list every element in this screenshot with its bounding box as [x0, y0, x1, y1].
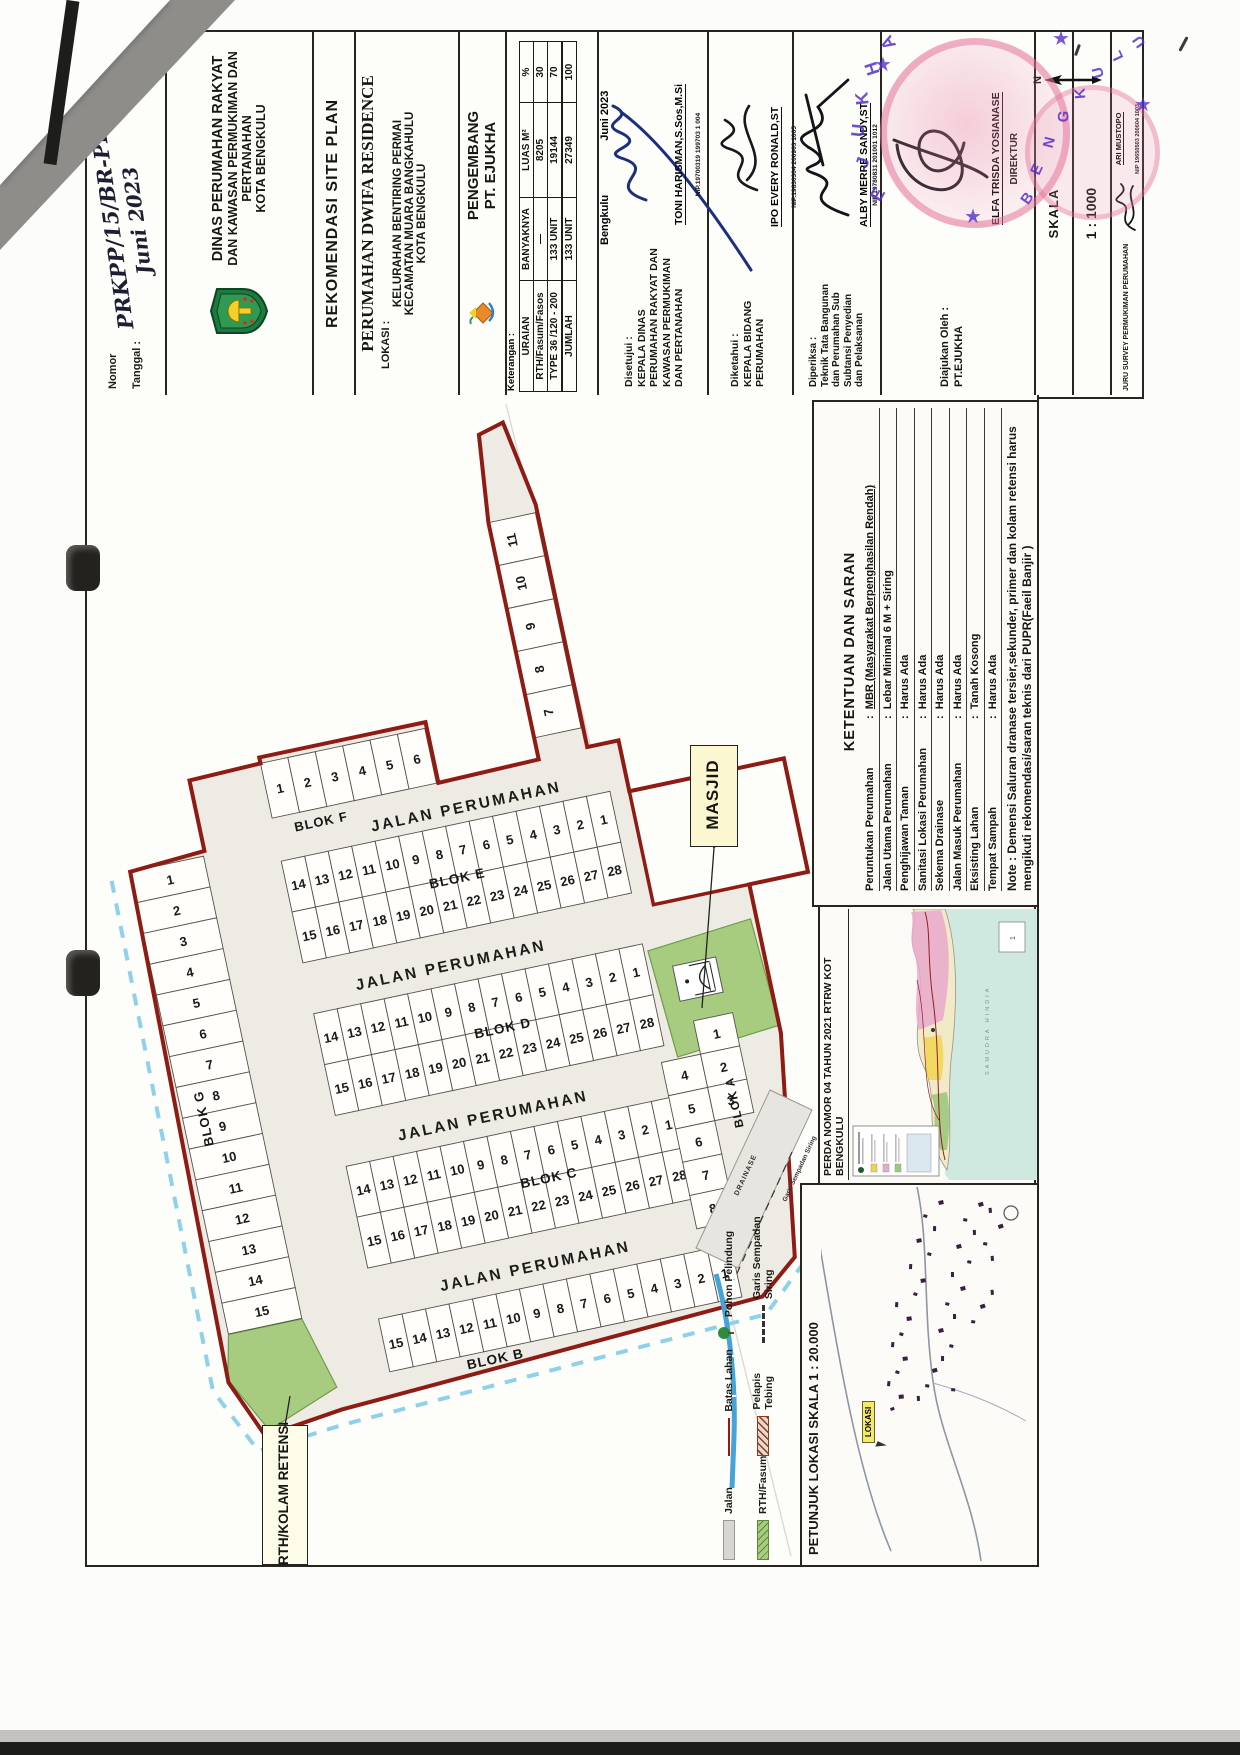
tebing-symbol-icon — [757, 1416, 769, 1456]
table-header-cell: LUAS M² — [520, 103, 534, 198]
ketentuan-note: Note : Demensi Saluran dranase tersier,s… — [1005, 410, 1034, 891]
map-building — [998, 1224, 1004, 1229]
pengembang-line1: PENGEMBANG — [465, 32, 482, 299]
map-building — [938, 1328, 944, 1333]
map-building — [899, 1332, 904, 1336]
rth-symbol-icon — [757, 1520, 769, 1560]
diketahui-signature — [707, 90, 767, 210]
ketentuan-row-label: Eksisting Lahan — [967, 719, 984, 891]
legend-item-label: Pohon Pelindung — [723, 1231, 735, 1317]
lot-number: 17 — [380, 1069, 397, 1087]
ketentuan-row: Tempat Sampah: Harus Ada — [985, 408, 1003, 891]
lot-number: 21 — [506, 1202, 523, 1220]
diajukan-title: DIREKTUR — [1009, 133, 1020, 185]
ketentuan-row-label: Penghijawan Taman — [897, 719, 914, 891]
map-building — [932, 1368, 938, 1373]
lot-number: 10 — [416, 1008, 433, 1026]
lot-number: 22 — [465, 892, 482, 910]
lot-number: 20 — [483, 1207, 500, 1225]
ketentuan-row: Peruntukan Perumahan: MBR (Masyarakat Be… — [862, 408, 880, 891]
diperiksa-label: Diperiksa : — [808, 284, 820, 387]
sea-label: SAMUDRA HINDIA — [985, 986, 991, 1075]
map-building — [938, 1200, 944, 1205]
diketahui-label: Diketahui : — [729, 301, 742, 387]
juru-name: ARI MUSTOPO — [1114, 113, 1124, 166]
lot-number: 19 — [395, 907, 412, 925]
dinas-line3: KOTA BENGKULU — [254, 32, 268, 285]
lot-number: 10 — [384, 856, 401, 874]
table-cell: 100 — [562, 42, 577, 103]
table-row: TYPE 36 /120 - 200133 UNIT1914470 — [548, 42, 563, 392]
lot-number: 12 — [402, 1171, 419, 1189]
legend-item: Pohon Pelindung — [723, 1200, 735, 1343]
ketentuan-row: Eksisting Lahan: Tanah Kosong — [967, 408, 985, 891]
lot-number: 27 — [615, 1019, 632, 1037]
punch-hole-bottom — [66, 950, 100, 996]
svg-text:1: 1 — [1010, 936, 1017, 940]
petunjuk-box: PETUNJUK LOKASI SKALA 1 : 20.000 LOKASI — [800, 1183, 1039, 1567]
skala-label: SKALA — [1046, 189, 1061, 239]
lot-number: 17 — [348, 917, 365, 935]
map-building — [923, 1214, 928, 1218]
lot-number: 12 — [369, 1018, 386, 1036]
map-building — [983, 1242, 987, 1246]
lot-number: 18 — [371, 912, 388, 930]
cell-keterangan: Keterangan : URAIANBANYAKNYALUAS M²%RTH/… — [505, 32, 599, 395]
rth-label: RTH/KOLAM RETENSI — [276, 1422, 291, 1565]
legend-item-label: RTH/Fasum — [757, 1456, 769, 1514]
map-building — [941, 1356, 944, 1361]
lokasi-line3: KOTA BENGKULU — [416, 32, 428, 395]
lot-number: 27 — [582, 867, 599, 885]
lot-number: 10 — [505, 1310, 522, 1328]
title-block-strip: Nomor Tanggal : PRKPP/15/BR-PRKPP/VI/202… — [85, 30, 1144, 399]
perda-title: PERDA NOMOR 04 TAHUN 2021 RTRW KOT BENGK… — [820, 907, 848, 1180]
map-building — [916, 1238, 922, 1243]
disetujui-label: Disetujui : — [623, 248, 636, 387]
pen-mark — [1178, 36, 1188, 52]
ketentuan-row-value: Tanah Kosong — [967, 408, 984, 709]
lot-number: 10 — [512, 575, 530, 592]
boundary-symbol-icon — [728, 1418, 730, 1456]
juru-label: JURU SURVEY PERMUKIMAN PERUMAHAN — [1123, 244, 1130, 391]
scan-bottom-edge — [0, 1742, 1240, 1755]
lot-number: 27 — [647, 1172, 664, 1190]
ketentuan-row: Jalan Masuk Perumahan: Harus Ada — [950, 408, 968, 891]
cell-perumahan: PERUMAHAN DWIFA RESIDENCE LOKASI : KELUR… — [354, 32, 460, 395]
colon: : — [932, 709, 949, 719]
map-building — [917, 1396, 920, 1401]
ketentuan-row-value: Harus Ada — [932, 408, 949, 709]
table-cell: 27349 — [562, 103, 577, 198]
diketahui-name: IPO EVERY RONALD,ST — [769, 107, 782, 227]
map-building — [895, 1370, 900, 1374]
lot-number: 12 — [458, 1320, 475, 1338]
lot-number: 13 — [240, 1241, 257, 1259]
map-building — [960, 1286, 966, 1291]
keterangan-table: URAIANBANYAKNYALUAS M²%RTH/Fasum/Fasos—8… — [519, 41, 577, 392]
lot-number: 15 — [253, 1302, 270, 1320]
table-header-cell: BANYAKNYA — [520, 198, 534, 281]
rekomendasi-title: REKOMENDASI SITE PLAN — [324, 99, 342, 328]
lot-number: 26 — [559, 872, 576, 890]
cell-diajukan: Diajukan Oleh : PT.EJUKHA ELFA TRISDA YO… — [880, 32, 1036, 395]
perda-map: SAMUDRA HINDIA 1 — [848, 909, 1037, 1180]
ketentuan-row: Penghijawan Taman: Harus Ada — [897, 408, 915, 891]
map-building — [891, 1342, 894, 1347]
diperiksa-nip: NIP.19780831 201001 1012 — [872, 103, 879, 227]
cell-skala-label: SKALA N — [1034, 32, 1074, 395]
cell-pengembang: PENGEMBANG PT. EJUKHA — [458, 32, 507, 395]
lot-number: 20 — [418, 902, 435, 920]
map-building — [971, 1320, 975, 1324]
ketentuan-row: Jalan Utama Perumahan: Lebar Minimal 6 M… — [880, 408, 898, 891]
legend-item: Batas Lahan — [723, 1343, 735, 1455]
table-cell: 8205 — [534, 103, 548, 198]
table-cell: 133 UNIT — [562, 198, 577, 281]
colon: : — [915, 709, 932, 719]
table-cell: RTH/Fasum/Fasos — [534, 281, 548, 392]
table-header-cell: % — [520, 42, 534, 103]
map-building — [980, 1304, 986, 1309]
lot-number: 22 — [530, 1197, 547, 1215]
map-building — [973, 1230, 976, 1235]
ketentuan-box: KETENTUAN DAN SARAN Peruntukan Perumahan… — [812, 400, 1039, 907]
ketentuan-row-label: Sanitasi Lokasi Perumahan — [915, 719, 932, 891]
legend-item-label: Jalan — [723, 1487, 735, 1514]
lot-number: 16 — [389, 1227, 406, 1245]
diajukan-signature — [882, 75, 992, 235]
legend-item-label: Pelapis Tebing — [751, 1343, 775, 1409]
lot-number: 18 — [436, 1217, 453, 1235]
lokasi-line2: KECAMATAN MUARA BANGKAHULU — [404, 32, 416, 395]
lot-number: 18 — [404, 1064, 421, 1082]
legend: JalanBatas LahanPohon PelindungRTH/Fasum… — [698, 1200, 800, 1560]
table-row: URAIANBANYAKNYALUAS M²% — [520, 42, 534, 392]
table-cell: 19144 — [548, 103, 563, 198]
lot-number: 13 — [378, 1176, 395, 1194]
legend-item: Jalan — [723, 1456, 735, 1560]
lot-number: 23 — [521, 1039, 538, 1057]
lot-number: 13 — [434, 1325, 451, 1343]
keterangan-label: Keterangan : — [506, 333, 517, 391]
lot-number: 21 — [474, 1049, 491, 1067]
table-row: RTH/Fasum/Fasos—820530 — [534, 42, 548, 392]
rth-label-box: RTH/KOLAM RETENSI — [262, 1425, 308, 1565]
lot-number: 25 — [535, 877, 552, 895]
ketentuan-row-label: Sekema Drainase — [932, 719, 949, 891]
ketentuan-row-value: Harus Ada — [985, 408, 1002, 709]
disetujui-name: TONI HARISMAN,S.Sos,M.Si — [673, 84, 686, 225]
perda-box: PERDA NOMOR 04 TAHUN 2021 RTRW KOT BENGK… — [818, 905, 1036, 1186]
colon: : — [950, 709, 967, 719]
lot-number: 23 — [553, 1192, 570, 1210]
map-building — [945, 1302, 950, 1306]
lot-number: 28 — [638, 1014, 655, 1032]
map-building — [890, 1407, 895, 1411]
ketentuan-row-label: Tempat Sampah — [985, 719, 1002, 891]
lot-number: 13 — [313, 871, 330, 889]
diperiksa-signature — [788, 75, 858, 225]
colon: : — [897, 709, 914, 719]
map-building — [927, 1252, 932, 1256]
tree-symbol-icon — [724, 1323, 734, 1343]
scanned-site-plan-page: Nomor Tanggal : PRKPP/15/BR-PRKPP/VI/202… — [0, 0, 1240, 1755]
table-header-cell: URAIAN — [520, 281, 534, 392]
ketentuan-row-value: Harus Ada — [950, 408, 967, 709]
lot-number: 19 — [459, 1212, 476, 1230]
lot-number: 15 — [301, 927, 318, 945]
legend-item: RTH/Fasum — [757, 1456, 769, 1560]
map-building — [991, 1256, 994, 1261]
legend-item-label: Batas Lahan — [723, 1349, 735, 1411]
cell-diperiksa: Diperiksa : Teknik Tata Bangunan dan Per… — [792, 32, 882, 395]
legend-item: Pelapis Tebing — [751, 1343, 775, 1455]
bengkulu-crest-icon — [209, 285, 269, 337]
ketentuan-row-label: Peruntukan Perumahan — [862, 719, 879, 891]
map-building — [899, 1394, 904, 1399]
lot-number: 13 — [346, 1023, 363, 1041]
table-cell: 133 UNIT — [548, 198, 563, 281]
lot-number: 16 — [324, 922, 341, 940]
map-building — [956, 1244, 962, 1249]
masjid-label: MASJID — [703, 759, 723, 829]
colon: : — [862, 709, 879, 719]
lot-number: 12 — [234, 1210, 251, 1228]
table-cell: 30 — [534, 42, 548, 103]
table-row: JUMLAH133 UNIT27349100 — [562, 42, 577, 392]
map-building — [887, 1381, 891, 1386]
lot-number: 26 — [591, 1024, 608, 1042]
cell-disetujui: Bengkulu Juni 2023 Disetujui : KEPALA DI… — [597, 32, 709, 395]
lokasi-line1: KELURAHAN BENTIRING PERMAI — [392, 32, 404, 395]
ketentuan-row-value: MBR (Masyarakat Berpenghasilan Rendah) — [862, 408, 879, 709]
map-building — [967, 1260, 972, 1264]
lot-number: 12 — [337, 866, 354, 884]
diajukan-label: Diajukan Oleh : — [938, 307, 952, 387]
ketentuan-row-value: Harus Ada — [897, 408, 914, 709]
map-building — [902, 1356, 908, 1361]
scan-bottom-shade — [0, 1730, 1240, 1742]
lot-number: 22 — [497, 1044, 514, 1062]
map-building — [906, 1316, 912, 1321]
petunjuk-title: PETUNJUK LOKASI SKALA 1 : 20.000 — [802, 1185, 821, 1561]
map-building — [989, 1208, 992, 1213]
siring-symbol-icon — [762, 1305, 765, 1343]
lot-number: 16 — [357, 1074, 374, 1092]
ketentuan-row: Sekema Drainase: Harus Ada — [932, 408, 950, 891]
lot-number: 15 — [366, 1232, 383, 1250]
disetujui-nip: NIP.19700319 199703 1 004 — [695, 113, 702, 196]
ketentuan-row: Sanitasi Lokasi Perumahan: Harus Ada — [915, 408, 933, 891]
colon: : — [985, 709, 1002, 719]
skala-value: 1 : 1000 — [1083, 188, 1099, 239]
map-building — [949, 1344, 954, 1348]
lot-number: 23 — [488, 887, 505, 905]
cell-juru-survey: JURU SURVEY PERMUKIMAN PERUMAHAN ARI MUS… — [1110, 32, 1142, 395]
north-label: N — [1032, 72, 1044, 88]
lot-number: 17 — [412, 1222, 429, 1240]
ketentuan-rows: Peruntukan Perumahan: MBR (Masyarakat Be… — [862, 408, 1002, 891]
diajukan-company: PT.EJUKHA — [952, 307, 966, 387]
map-building — [909, 1264, 912, 1269]
perumahan-title: PERUMAHAN DWIFA RESIDENCE — [358, 32, 378, 395]
legend-item-label: Garis Sempadan Siring — [751, 1200, 775, 1299]
cell-skala-value: 1 : 1000 — [1072, 32, 1112, 395]
lokasi-tag: LOKASI — [862, 1401, 875, 1443]
lot-number: 25 — [568, 1029, 585, 1047]
map-building — [913, 1292, 918, 1296]
lot-number: 10 — [449, 1161, 466, 1179]
lot-number: 20 — [450, 1054, 467, 1072]
map-building — [990, 1290, 994, 1295]
lot-number: 19 — [427, 1059, 444, 1077]
masjid-label-box: MASJID — [690, 745, 738, 847]
lot-number: 26 — [624, 1177, 641, 1195]
petunjuk-map — [821, 1187, 1029, 1561]
punch-hole-top — [66, 545, 100, 591]
juru-nip: NIP 19650503 200604 1003 — [1135, 104, 1141, 174]
cell-rekomendasi: REKOMENDASI SITE PLAN — [312, 32, 356, 395]
lot-number: 21 — [442, 897, 459, 915]
table-cell: 70 — [548, 42, 563, 103]
colon: : — [880, 709, 897, 719]
map-building — [895, 1302, 898, 1307]
ejukha-logo-icon — [467, 299, 497, 327]
nomor-label: Nomor — [107, 354, 119, 389]
legend-item: Garis Sempadan Siring — [751, 1200, 775, 1343]
colon: : — [967, 709, 984, 719]
ketentuan-row-value: Harus Ada — [915, 408, 932, 709]
lokasi-label: LOKASI : — [380, 32, 392, 369]
map-building — [933, 1226, 936, 1231]
table-cell: — — [534, 198, 548, 281]
map-building — [951, 1388, 955, 1391]
map-building — [951, 1272, 954, 1277]
diajukan-name: ELFA TRISDA YOSIANASE — [990, 92, 1003, 225]
lot-number: 28 — [606, 862, 623, 880]
lot-number: 15 — [387, 1334, 404, 1352]
lot-number: 15 — [333, 1079, 350, 1097]
table-cell: JUMLAH — [562, 281, 577, 392]
ketentuan-row-label: Jalan Masuk Perumahan — [950, 719, 967, 891]
tanggal-label: Tanggal : — [131, 341, 143, 389]
map-building — [963, 1218, 967, 1222]
ketentuan-title: KETENTUAN DAN SARAN — [842, 402, 858, 901]
cell-diketahui: Diketahui : KEPALA BIDANG PERUMAHAN IPO … — [707, 32, 794, 395]
map-building — [920, 1278, 926, 1283]
map-building — [925, 1384, 929, 1388]
pengembang-line2: PT. EJUKHA — [482, 32, 499, 299]
lot-number: 25 — [600, 1182, 617, 1200]
map-building — [978, 1202, 984, 1207]
diperiksa-name: ALBY MERRE SANDY,ST — [858, 103, 871, 227]
scan-corner-fold — [0, 0, 170, 185]
juru-signature — [1111, 178, 1141, 238]
road-symbol-icon — [723, 1520, 735, 1560]
ketentuan-row-value: Lebar Minimal 6 M + Siring — [880, 408, 897, 709]
map-building — [953, 1314, 956, 1319]
table-cell: TYPE 36 /120 - 200 — [548, 281, 563, 392]
lot-number: 10 — [221, 1148, 238, 1166]
ketentuan-row-label: Jalan Utama Perumahan — [880, 719, 897, 891]
